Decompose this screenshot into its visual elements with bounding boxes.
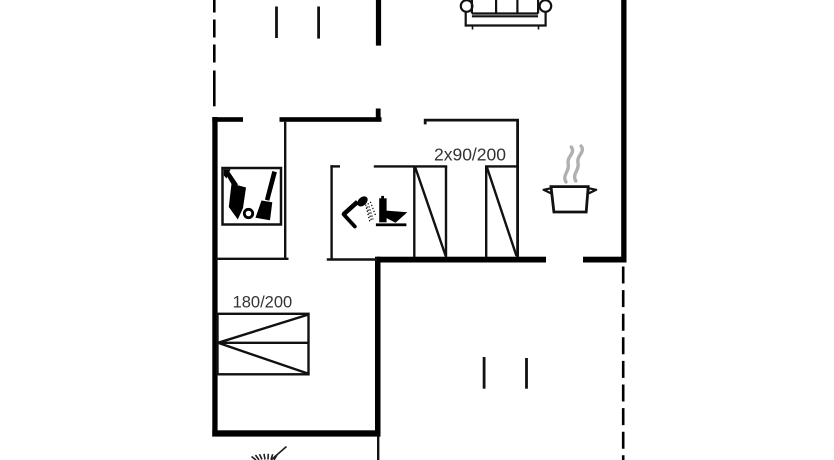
svg-text:2x90/200: 2x90/200 — [434, 145, 506, 165]
svg-text:180/200: 180/200 — [233, 294, 293, 312]
